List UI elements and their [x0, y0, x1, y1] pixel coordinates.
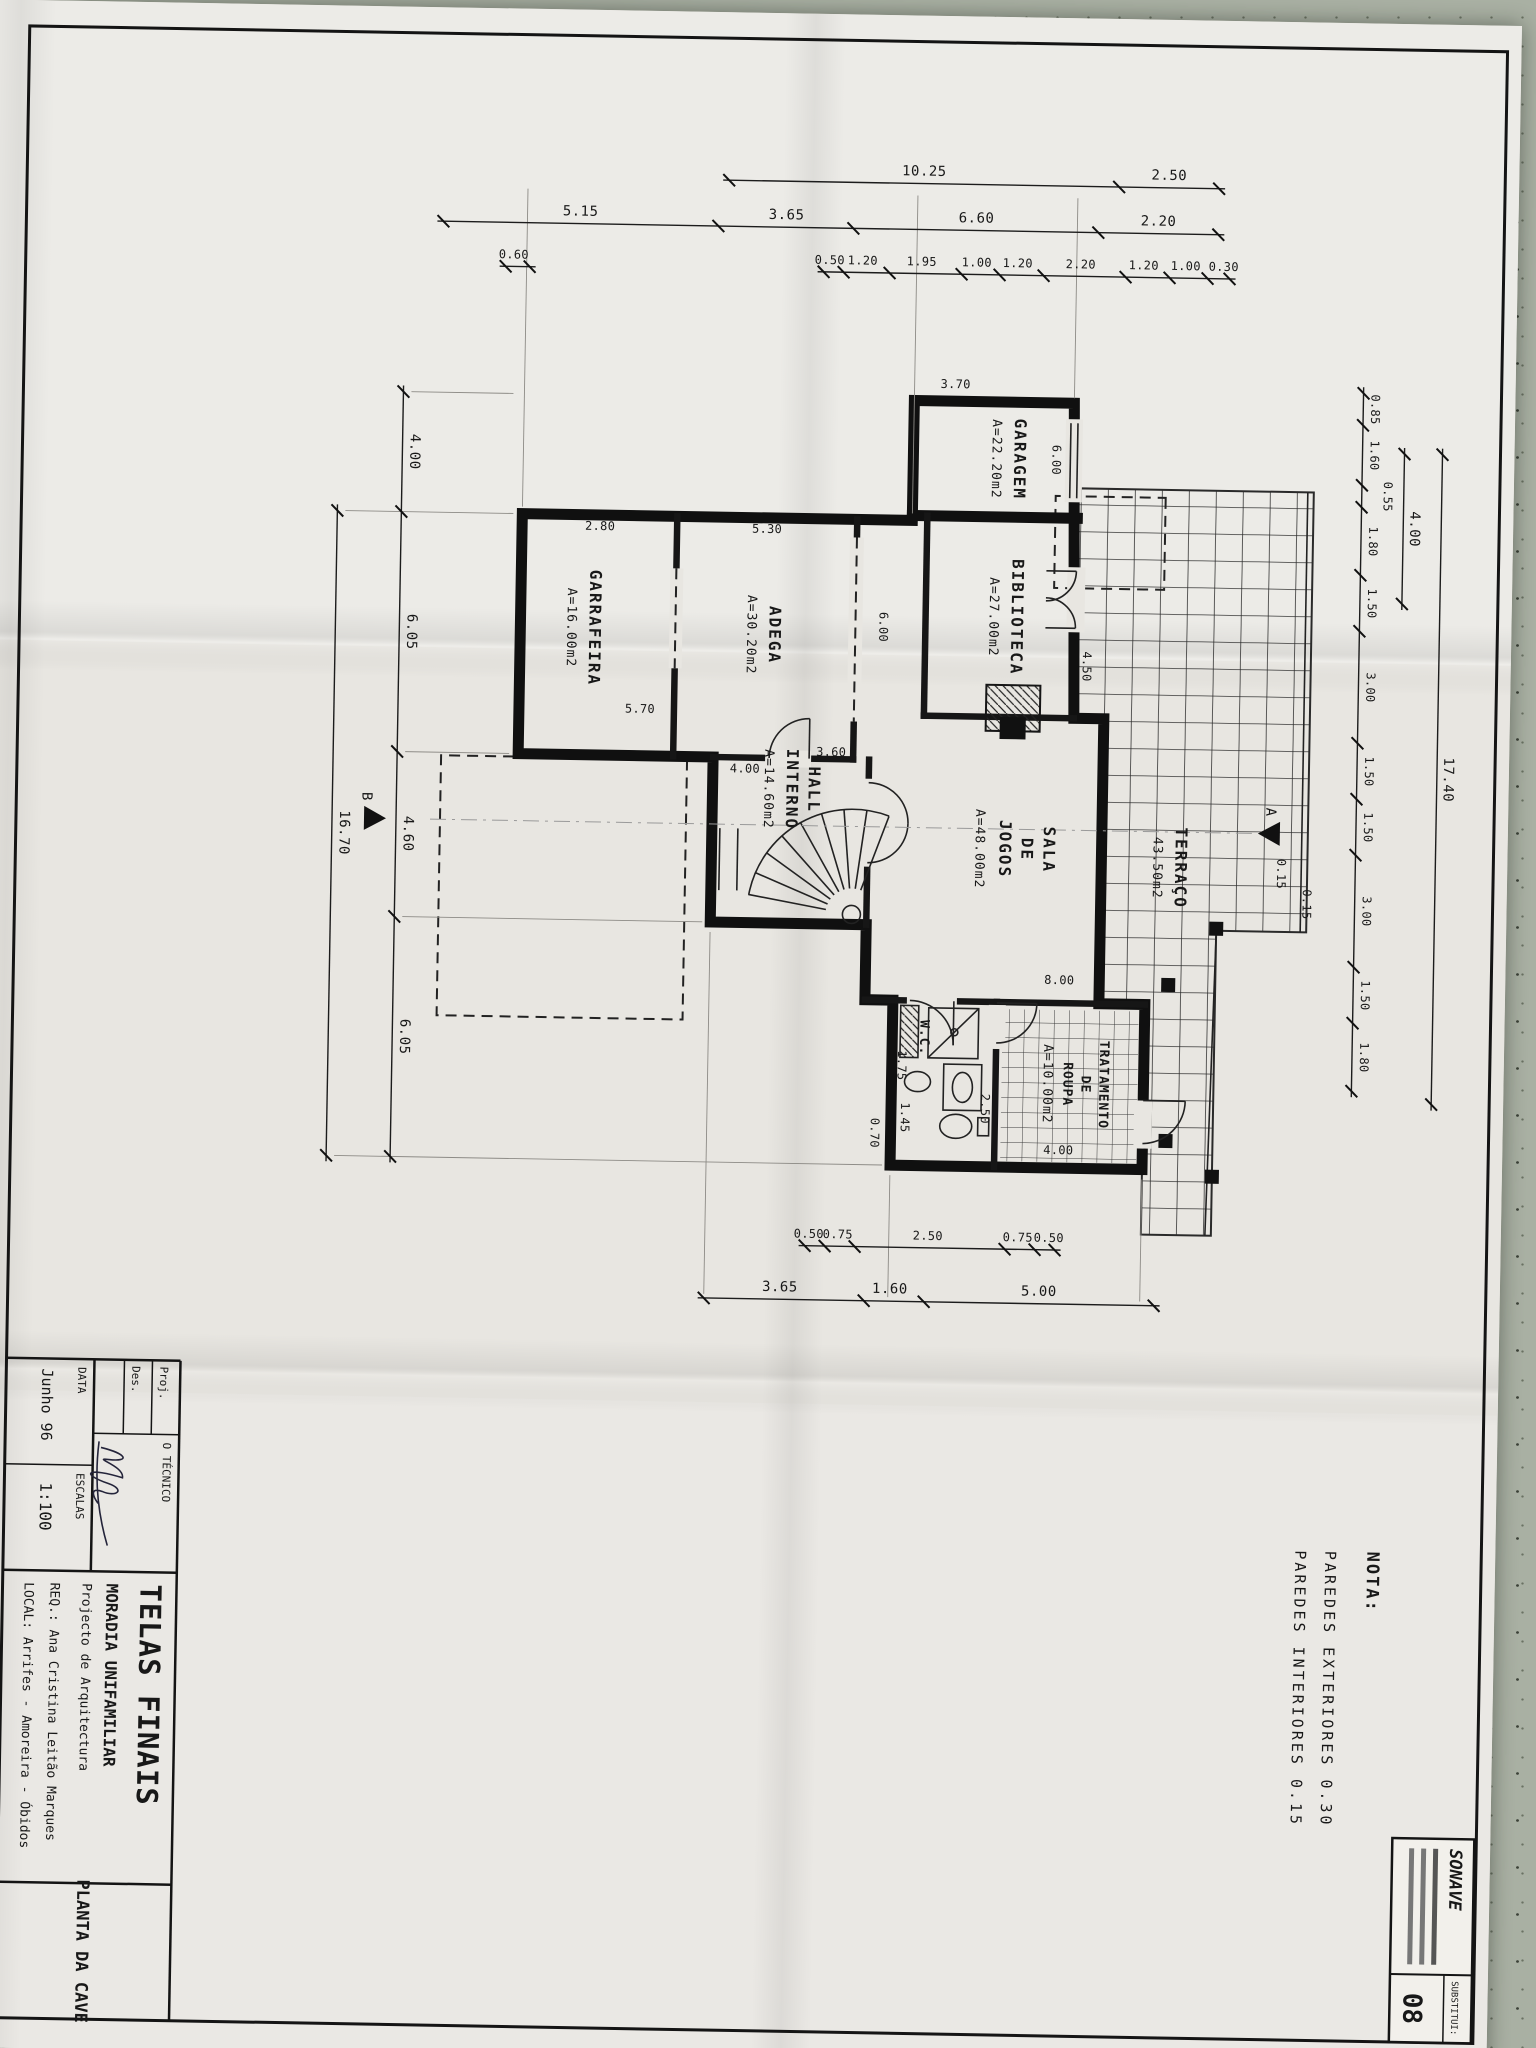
dim-label: 3.00	[1363, 672, 1378, 702]
dim-label: 5.70	[625, 701, 655, 716]
dim-label: 0.75	[823, 1227, 853, 1242]
dim-label: 17.40	[1439, 757, 1456, 802]
dim-label: 0.50	[1034, 1231, 1064, 1246]
dim-label: 1.20	[848, 253, 878, 268]
drawing-sheet: A B GARAGEM A=22.20m2 BIBLIOTECA A=27.00…	[0, 0, 1522, 2048]
dim-label: 1.45	[898, 1102, 913, 1132]
dim-label: 3.70	[940, 377, 970, 392]
titleblock-main-title: TELAS FINAIS	[130, 1584, 168, 1806]
room-garrafeira: GARRAFEIRA	[584, 570, 605, 687]
dim-label: 6.05	[403, 614, 420, 650]
dim-label: 16.70	[335, 810, 352, 855]
dim-label: 0.50	[815, 253, 845, 268]
dim-label: 1.00	[962, 255, 992, 270]
dim-label: 0.50	[794, 1226, 824, 1241]
dim-label: 6.00	[1049, 445, 1064, 475]
dim-label: 2.50	[978, 1094, 993, 1124]
room-wc: W.C.	[916, 1020, 932, 1056]
dim-label: 1.80	[1366, 526, 1381, 556]
dim-label: 4.00	[730, 761, 760, 776]
dim-label: 1.80	[1357, 1042, 1372, 1072]
dim-label: 0.70	[867, 1118, 882, 1148]
dim-label: 4.00	[1043, 1143, 1073, 1158]
stamp-brand: SONAVE	[1444, 1849, 1465, 1912]
dim-label: 1.20	[1003, 256, 1033, 271]
room-terraco: TERRAÇO	[1171, 827, 1191, 909]
room-adega: ADEGA	[765, 606, 785, 664]
room-garrafeira-area: A=16.00m2	[563, 588, 579, 668]
titleblock-tecnico-label: O TÉCNICO	[159, 1442, 173, 1502]
dim-label: 1.00	[1171, 259, 1201, 274]
titleblock-escalas-label: ESCALAS	[73, 1473, 87, 1520]
dim-label: 1.50	[1365, 588, 1380, 618]
dim-label: 0.55	[1381, 482, 1396, 512]
dim-label: 4.00	[1406, 511, 1423, 547]
dim-label: 4.00	[406, 434, 423, 470]
titleblock-drawing-title: PLANTA DA CAVE	[70, 1879, 92, 2023]
dim-label: 2.50	[913, 1229, 943, 1244]
nota-heading: NOTA:	[1361, 1551, 1382, 1613]
room-hall-area: A=14.60m2	[760, 749, 776, 829]
stamp-block: SONAVE SUBSTITUI: 08	[1389, 1838, 1475, 2043]
dim-label: 5.00	[1021, 1283, 1057, 1300]
dim-label: 6.60	[959, 210, 995, 227]
room-tratamento: TRATAMENTO	[1095, 1041, 1112, 1130]
dim-label: 1.20	[1129, 258, 1159, 273]
dim-label: 0.85	[1368, 394, 1383, 424]
dim-label: 2.50	[1151, 168, 1187, 185]
dim-label: 5.30	[752, 522, 782, 537]
section-label: A	[1262, 808, 1278, 817]
dim-label: 3.65	[769, 207, 805, 224]
stamp-substitui: SUBSTITUI:	[1448, 1981, 1459, 2035]
dim-label: 4.50	[1079, 651, 1094, 681]
room-garagem-area: A=22.20m2	[988, 419, 1004, 499]
dim-label: 6.05	[396, 1019, 413, 1055]
dim-label: 1.50	[1361, 812, 1376, 842]
room-sala: SALA	[1039, 826, 1059, 873]
room-hall: HALL	[804, 766, 824, 813]
dim-label: 1.75	[895, 1050, 910, 1080]
titleblock-escalas-value: 1:100	[36, 1482, 56, 1530]
dim-label: 10.25	[902, 163, 947, 180]
fireplace	[985, 685, 1040, 740]
dim-label: 0.30	[1209, 260, 1239, 275]
dim-label: 3.65	[762, 1279, 798, 1296]
room-biblioteca: BIBLIOTECA	[1007, 559, 1028, 676]
room-terraco-area: 43.50m2	[1149, 837, 1165, 899]
room-biblioteca-area: A=27.00m2	[985, 577, 1001, 657]
room-sala2: DE	[1017, 838, 1036, 862]
room-tratamento2: DE	[1077, 1076, 1092, 1094]
sheet-number: 08	[1396, 1992, 1427, 2024]
dim-label: 6.00	[876, 612, 891, 642]
dim-label: 0.15	[1299, 889, 1314, 919]
room-sala3: JOGOS	[995, 820, 1015, 878]
titleblock-des-label: Des.	[129, 1366, 142, 1393]
dim-label: 4.60	[399, 816, 416, 852]
dim-label: 2.80	[585, 519, 615, 534]
dim-label: 2.20	[1066, 257, 1096, 272]
dim-label: 1.50	[1362, 756, 1377, 786]
titleblock-subtitle: MORADIA UNIFAMILIAR	[99, 1583, 121, 1767]
dim-label: 0.15	[1274, 859, 1289, 889]
dim-label: 1.60	[1367, 440, 1382, 470]
dim-label: 3.60	[816, 745, 846, 760]
titleblock-proj-label: Proj.	[157, 1366, 171, 1399]
room-garagem: GARAGEM	[1010, 418, 1030, 500]
dim-label: 3.00	[1359, 896, 1374, 926]
room-tratamento3: ROUPA	[1059, 1062, 1075, 1106]
dim-label: 0.75	[1003, 1230, 1033, 1245]
dim-label: 8.00	[1044, 973, 1074, 988]
dim-label: 1.60	[872, 1281, 908, 1298]
dim-label: 2.20	[1141, 213, 1177, 230]
room-hall2: INTERNO	[782, 748, 802, 830]
dim-label: 1.95	[907, 254, 937, 269]
section-label: B	[358, 792, 374, 801]
titleblock-data-value: Junho 96	[37, 1368, 56, 1441]
photo-of-floor-plan-sheet: A B GARAGEM A=22.20m2 BIBLIOTECA A=27.00…	[0, 0, 1536, 2048]
room-tratamento-area: A=10.00m2	[1039, 1044, 1055, 1124]
dim-label: 1.50	[1358, 980, 1373, 1010]
room-sala-area: A=48.00m2	[971, 809, 987, 889]
room-adega-area: A=30.20m2	[743, 595, 759, 675]
dim-label: 0.60	[499, 247, 529, 262]
dim-label: 5.15	[563, 203, 599, 220]
titleblock-data-label: DATA	[75, 1367, 88, 1394]
plan-canvas: A B GARAGEM A=22.20m2 BIBLIOTECA A=27.00…	[0, 0, 1522, 2048]
